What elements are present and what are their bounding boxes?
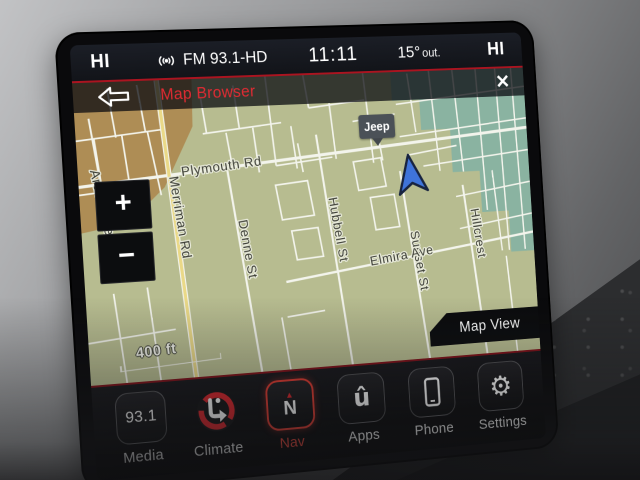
- nav-label: Nav: [279, 433, 305, 452]
- climate-label: Climate: [194, 439, 244, 460]
- radio-station-indicator: FM 93.1-HD: [156, 48, 268, 70]
- settings-tile[interactable]: ⚙: [477, 360, 525, 412]
- outside-temp-value: 15°: [397, 43, 421, 63]
- back-arrow-icon: [96, 84, 133, 109]
- screen-tilt-wrapper: HI FM 93.1-HD 11:11 15° out. HI: [54, 0, 604, 480]
- dock-item-nav[interactable]: ▲ N Nav: [258, 377, 324, 466]
- vehicle-position-arrow-icon: [392, 151, 430, 199]
- climate-seat-icon: [193, 387, 239, 436]
- phone-label: Phone: [414, 419, 454, 439]
- nav-tile[interactable]: ▲ N: [264, 377, 315, 431]
- map-canvas[interactable]: Plymouth Rd Merriman Rd Arden Ave Denne …: [72, 68, 540, 386]
- outside-temp-indicator: 15° out.: [397, 42, 441, 62]
- settings-label: Settings: [478, 413, 527, 433]
- apps-tile[interactable]: û: [337, 371, 387, 425]
- antenna-icon: [156, 52, 177, 69]
- uconnect-apps-icon: û: [353, 383, 371, 413]
- media-station-value: 93.1: [125, 407, 157, 428]
- dashboard-photo: HI FM 93.1-HD 11:11 15° out. HI: [0, 0, 640, 480]
- apps-label: Apps: [348, 426, 381, 445]
- map-browser-title: Map Browser: [160, 82, 256, 104]
- jeep-poi-marker: Jeep: [358, 114, 395, 139]
- zoom-in-button[interactable]: +: [94, 179, 152, 231]
- dock-item-settings[interactable]: ⚙ Settings: [471, 359, 533, 444]
- media-tile[interactable]: 93.1: [114, 390, 168, 446]
- dock-item-apps[interactable]: û Apps: [330, 371, 395, 458]
- zoom-controls: + −: [94, 179, 156, 284]
- close-button[interactable]: ✕: [495, 73, 511, 92]
- phone-icon: [416, 374, 448, 411]
- screen-bezel: HI FM 93.1-HD 11:11 15° out. HI: [54, 20, 559, 480]
- outside-temp-unit: out.: [422, 46, 441, 60]
- passenger-temp-indicator: HI: [487, 39, 505, 60]
- climate-tile[interactable]: [190, 383, 242, 438]
- zoom-out-button[interactable]: −: [97, 231, 155, 284]
- media-label: Media: [123, 446, 165, 467]
- dock-item-media[interactable]: 93.1 Media: [107, 389, 176, 480]
- back-button[interactable]: [96, 84, 133, 109]
- dock-item-climate[interactable]: Climate: [183, 383, 251, 473]
- phone-tile[interactable]: [407, 366, 456, 419]
- compass-letter: N: [283, 398, 298, 418]
- clock: 11:11: [308, 43, 359, 67]
- gear-icon: ⚙: [489, 371, 513, 401]
- uconnect-display: HI FM 93.1-HD 11:11 15° out. HI: [70, 32, 546, 480]
- dock-item-phone[interactable]: Phone: [401, 365, 464, 451]
- radio-station-text: FM 93.1-HD: [183, 48, 268, 69]
- driver-temp-indicator: HI: [90, 51, 111, 73]
